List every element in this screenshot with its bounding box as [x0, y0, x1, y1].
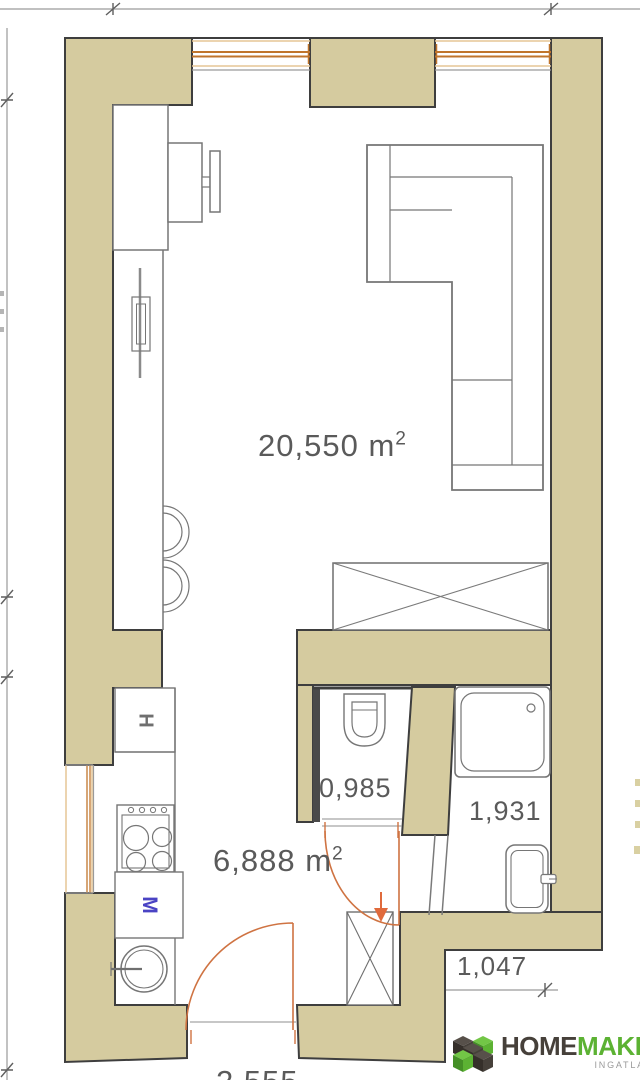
shower-tray-icon [455, 687, 550, 777]
logo-text-block: HOMEMAKER INGATLANOK [501, 1029, 640, 1070]
tv-screen-icon [210, 151, 220, 212]
logo-text-maker: MAKER [577, 1031, 640, 1061]
living-room-furniture [113, 105, 548, 630]
wall-wc-right-slanted [402, 687, 455, 835]
left-window-sill [65, 765, 94, 893]
wall-heater-upper-icon [163, 506, 189, 558]
washing-machine-label: M [115, 872, 183, 938]
floorplan-drawing [0, 0, 640, 1080]
living-room-area-label: 20,550 m2 [258, 428, 406, 464]
wall-living-bottom [297, 630, 551, 685]
wc-area-label: 0,985 [319, 773, 392, 804]
wall-top-pillar [310, 38, 435, 107]
logo-name: HOMEMAKER [501, 1029, 640, 1064]
homemaker-logo: HOMEMAKER INGATLANOK [449, 1029, 640, 1079]
dimension-label-1047: 1,047 [457, 951, 527, 982]
entry-door-swing-icon [186, 923, 293, 1030]
left-window-glass-icon [87, 765, 90, 893]
wall-heater-lower-icon [163, 560, 189, 612]
left-window-frame-icon [66, 765, 92, 893]
logo-text-home: HOME [501, 1031, 577, 1061]
tv-unit-icon [168, 143, 202, 222]
bathroom-door-leaf-icon [429, 835, 448, 915]
kitchen-area-label: 6,888 m2 [213, 843, 343, 879]
floorplan-page: 20,550 m2 6,888 m2 0,985 1,931 1,047 2,5… [0, 0, 640, 1080]
tv-mount-icon [202, 177, 210, 187]
wall-right [551, 38, 602, 950]
fridge-label: H [115, 688, 175, 752]
bathroom-area-label: 1,931 [469, 796, 542, 827]
tv-cabinet-icon [113, 105, 168, 250]
homemaker-logo-icon [449, 1029, 497, 1079]
utility-shaft [347, 912, 393, 1005]
wall-wc-left-column [297, 685, 313, 822]
wc-fixtures [344, 694, 385, 746]
dimension-label-2555-clipped: 2,555 [216, 1064, 299, 1080]
